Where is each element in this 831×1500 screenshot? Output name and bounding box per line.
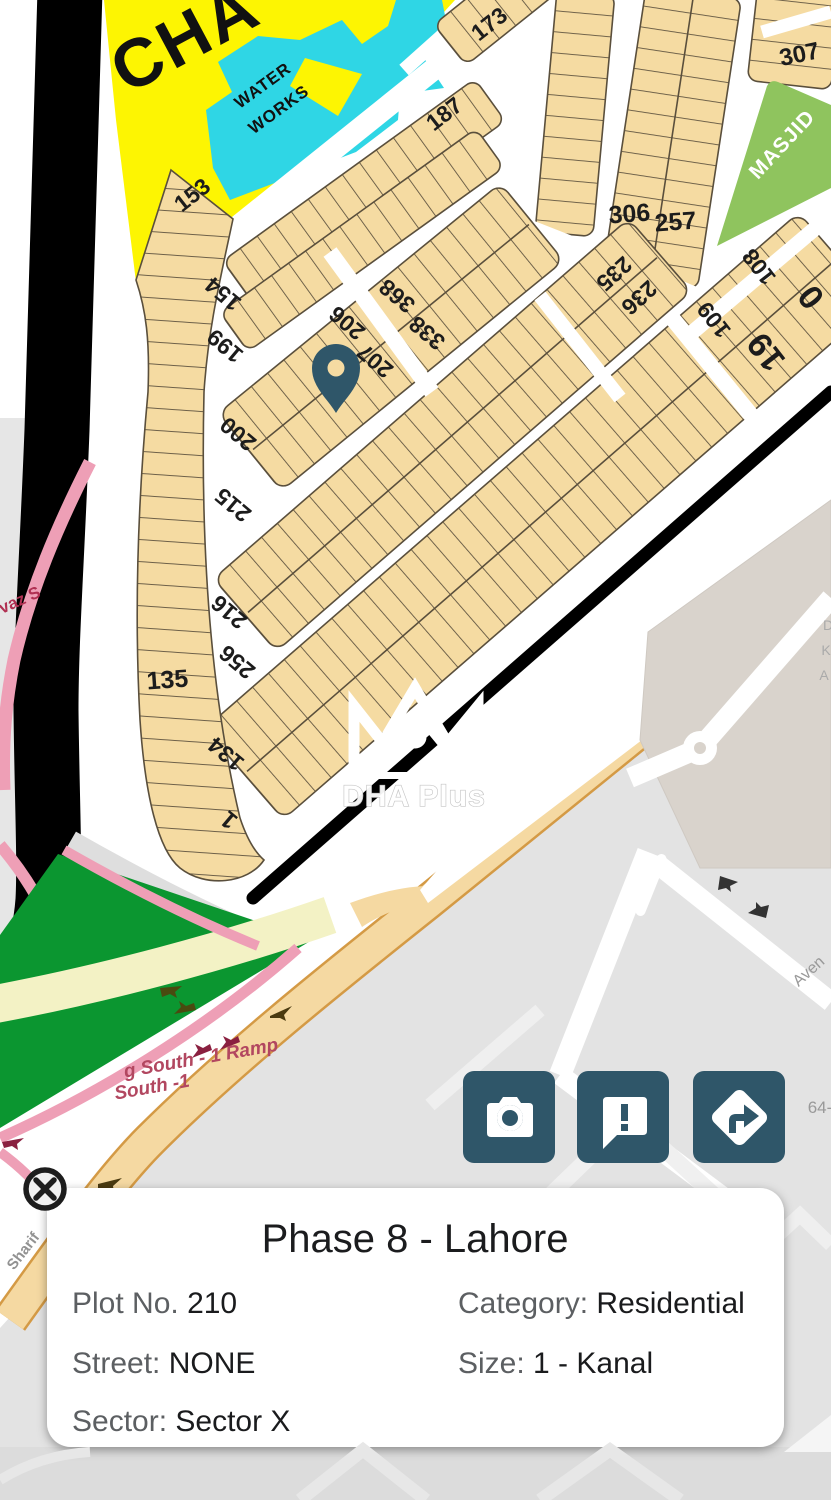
svg-text:Plot No. 210: Plot No. 210 [72,1287,237,1320]
svg-text:135: 135 [146,665,190,696]
svg-text:K: K [821,642,831,658]
svg-text:257: 257 [654,207,698,238]
svg-text:Sector: Sector X: Sector: Sector X [72,1405,290,1438]
svg-text:Category: Residential: Category: Residential [458,1287,745,1320]
svg-text:Phase 8 - Lahore: Phase 8 - Lahore [262,1217,569,1261]
svg-text:64-: 64- [808,1098,831,1117]
svg-text:DHA Plus: DHA Plus [342,780,486,813]
svg-text:Street: NONE: Street: NONE [72,1347,255,1380]
svg-text:306: 306 [608,199,652,230]
svg-text:A: A [819,667,829,683]
svg-text:D: D [823,617,831,633]
svg-text:Size: 1 - Kanal: Size: 1 - Kanal [458,1347,653,1380]
